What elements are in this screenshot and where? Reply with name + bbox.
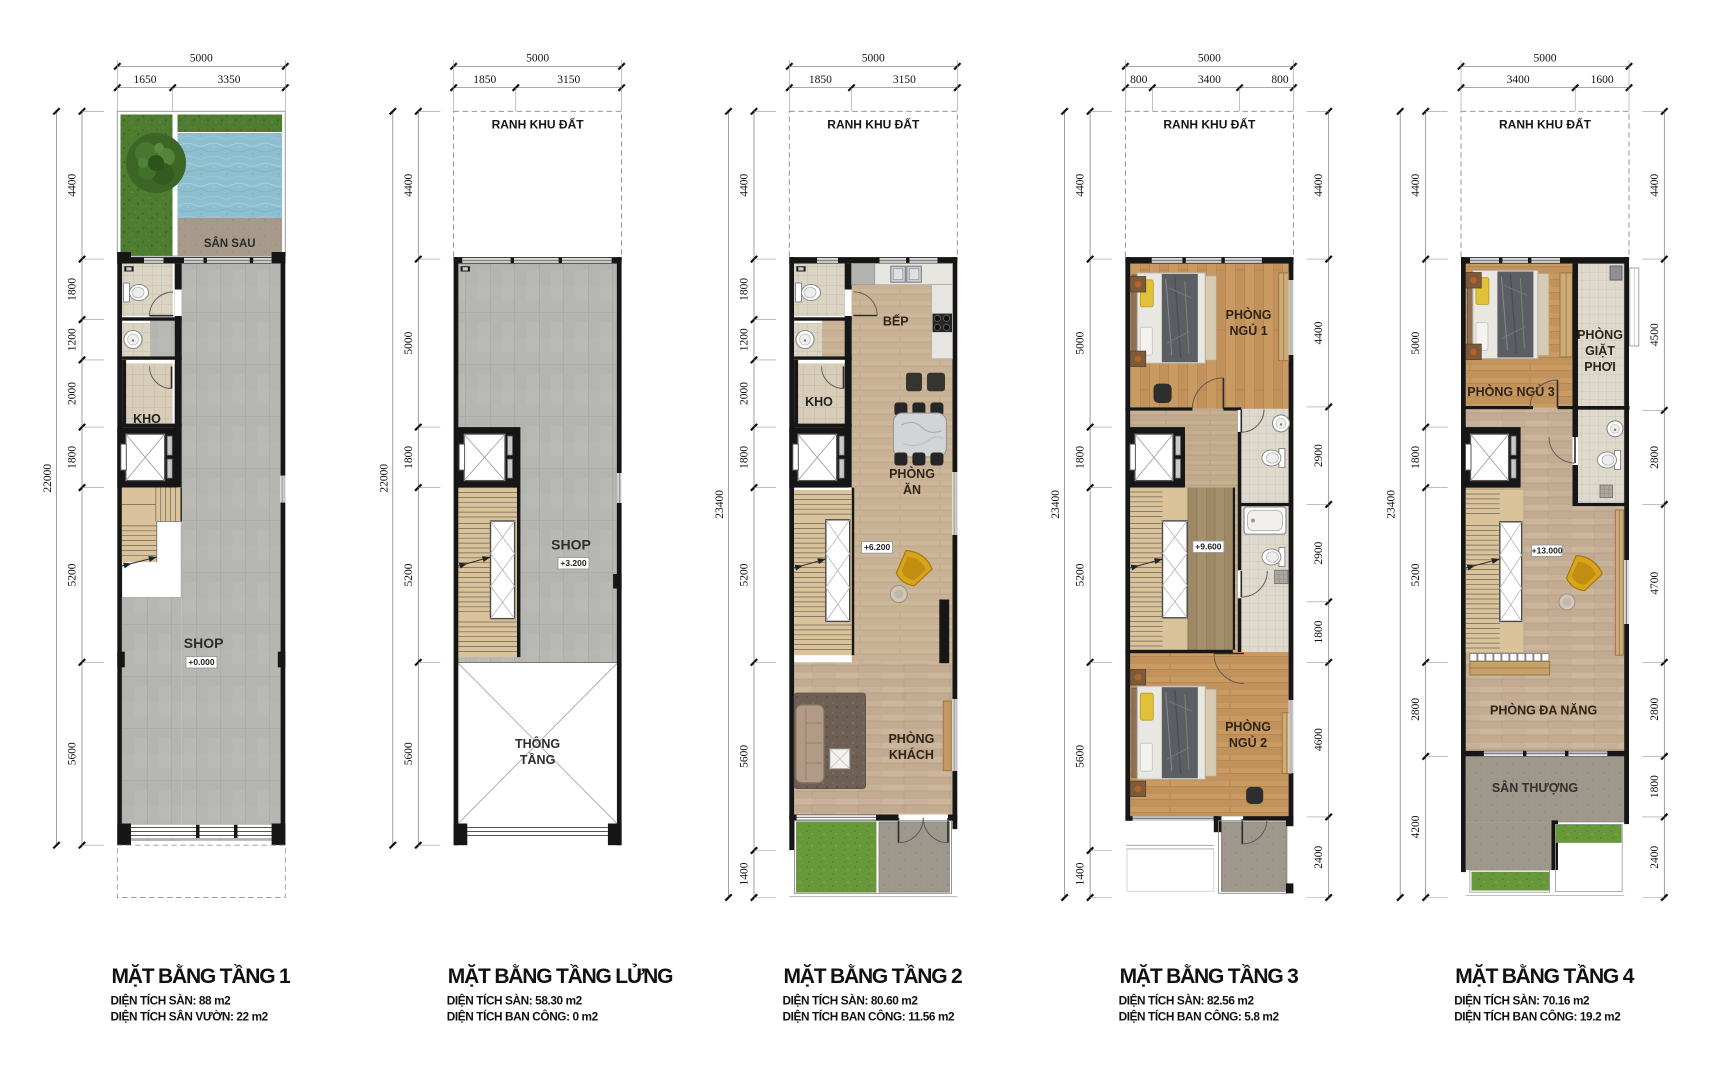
svg-text:RANH KHU ĐẤT: RANH KHU ĐẤT [1163, 117, 1256, 132]
svg-text:DIỆN TÍCH SÀN: 80.60 m2: DIỆN TÍCH SÀN: 80.60 m2 [783, 994, 919, 1008]
svg-text:5200: 5200 [403, 563, 415, 586]
svg-text:1650: 1650 [134, 74, 157, 86]
svg-text:SHOP: SHOP [184, 635, 224, 651]
svg-text:1200: 1200 [67, 328, 79, 351]
svg-text:5000: 5000 [1075, 331, 1087, 354]
svg-text:1800: 1800 [1649, 775, 1661, 798]
svg-text:MẶT BẰNG TẦNG 1: MẶT BẰNG TẦNG 1 [112, 964, 292, 988]
svg-text:3400: 3400 [1198, 74, 1221, 86]
svg-text:RANH KHU ĐẤT: RANH KHU ĐẤT [1499, 117, 1592, 132]
svg-text:DIỆN TÍCH BAN CÔNG: 19.2 m2: DIỆN TÍCH BAN CÔNG: 19.2 m2 [1454, 1010, 1621, 1024]
svg-text:+0.000: +0.000 [188, 657, 215, 667]
svg-text:SHOP: SHOP [551, 537, 591, 553]
svg-text:2000: 2000 [739, 382, 751, 405]
svg-text:1800: 1800 [67, 278, 79, 301]
svg-text:5600: 5600 [67, 742, 79, 765]
svg-text:22000: 22000 [378, 464, 390, 493]
svg-text:ĂN: ĂN [903, 482, 921, 497]
svg-text:MẶT BẰNG TẦNG 2: MẶT BẰNG TẦNG 2 [784, 964, 963, 988]
svg-text:1800: 1800 [1075, 446, 1087, 469]
svg-text:3150: 3150 [893, 74, 916, 86]
svg-text:800: 800 [1130, 74, 1148, 86]
svg-text:4200: 4200 [1410, 815, 1422, 838]
svg-text:2000: 2000 [67, 382, 79, 405]
svg-text:+13.000: +13.000 [1532, 546, 1563, 556]
svg-text:23400: 23400 [714, 490, 726, 519]
svg-text:THÔNG: THÔNG [515, 736, 560, 751]
svg-text:4400: 4400 [403, 173, 415, 196]
svg-text:3150: 3150 [557, 74, 580, 86]
svg-text:1850: 1850 [809, 74, 832, 86]
svg-text:5200: 5200 [67, 563, 79, 586]
svg-text:MẶT BẰNG TẦNG 3: MẶT BẰNG TẦNG 3 [1120, 964, 1299, 988]
svg-text:5000: 5000 [862, 53, 885, 65]
svg-text:3400: 3400 [1507, 74, 1530, 86]
svg-text:1400: 1400 [1075, 862, 1087, 885]
svg-text:5000: 5000 [526, 53, 549, 65]
svg-text:5000: 5000 [1198, 53, 1221, 65]
svg-text:4500: 4500 [1649, 323, 1661, 346]
svg-text:2800: 2800 [1649, 446, 1661, 469]
svg-text:1800: 1800 [67, 446, 79, 469]
svg-text:3350: 3350 [218, 74, 241, 86]
svg-text:RANH KHU ĐẤT: RANH KHU ĐẤT [827, 117, 920, 132]
svg-text:4400: 4400 [1075, 173, 1087, 196]
svg-text:PHÒNG: PHÒNG [888, 731, 934, 746]
svg-text:5600: 5600 [1075, 745, 1087, 768]
svg-text:5000: 5000 [1410, 331, 1422, 354]
svg-text:2800: 2800 [1410, 698, 1422, 721]
svg-text:23400: 23400 [1386, 490, 1398, 519]
svg-text:4400: 4400 [1410, 173, 1422, 196]
svg-text:2400: 2400 [1649, 845, 1661, 868]
svg-text:4400: 4400 [67, 173, 79, 196]
svg-text:4400: 4400 [1313, 321, 1325, 344]
svg-text:TẦNG: TẦNG [520, 752, 555, 767]
svg-text:1400: 1400 [739, 862, 751, 885]
svg-text:1600: 1600 [1591, 74, 1614, 86]
svg-text:5000: 5000 [1534, 53, 1557, 65]
svg-text:+9.600: +9.600 [1195, 542, 1222, 552]
svg-text:4400: 4400 [1649, 173, 1661, 196]
svg-text:23400: 23400 [1050, 490, 1062, 519]
svg-text:1200: 1200 [739, 328, 751, 351]
svg-text:DIỆN TÍCH BAN CÔNG: 11.56 m2: DIỆN TÍCH BAN CÔNG: 11.56 m2 [783, 1010, 956, 1024]
svg-text:DIỆN TÍCH SÂN VƯỜN: 22 m2: DIỆN TÍCH SÂN VƯỜN: 22 m2 [111, 1010, 269, 1024]
svg-text:5200: 5200 [1410, 563, 1422, 586]
svg-text:DIỆN TÍCH BAN CÔNG: 5.8 m2: DIỆN TÍCH BAN CÔNG: 5.8 m2 [1119, 1010, 1280, 1024]
svg-text:PHÒNG: PHÒNG [1577, 327, 1623, 342]
svg-text:SÂN THƯỢNG: SÂN THƯỢNG [1492, 780, 1578, 795]
svg-text:DIỆN TÍCH SÀN: 88 m2: DIỆN TÍCH SÀN: 88 m2 [111, 994, 232, 1008]
svg-text:4400: 4400 [739, 173, 751, 196]
svg-text:1850: 1850 [473, 74, 496, 86]
svg-text:NGỦ 1: NGỦ 1 [1229, 323, 1267, 338]
svg-text:RANH KHU ĐẤT: RANH KHU ĐẤT [492, 117, 585, 132]
svg-text:+6.200: +6.200 [864, 542, 891, 552]
svg-text:5000: 5000 [190, 53, 213, 65]
svg-text:MẶT BẰNG TẦNG LỬNG: MẶT BẰNG TẦNG LỬNG [448, 964, 673, 988]
svg-text:BẾP: BẾP [883, 314, 909, 329]
svg-text:1800: 1800 [1410, 446, 1422, 469]
svg-text:PHÒNG: PHÒNG [1225, 719, 1271, 734]
svg-text:+3.200: +3.200 [560, 558, 587, 568]
svg-text:PHÒNG ĐA NĂNG: PHÒNG ĐA NĂNG [1490, 703, 1597, 718]
svg-text:22000: 22000 [42, 464, 54, 493]
svg-text:5600: 5600 [403, 742, 415, 765]
svg-text:MẶT BẰNG TẦNG 4: MẶT BẰNG TẦNG 4 [1455, 964, 1635, 988]
svg-text:4600: 4600 [1313, 728, 1325, 751]
svg-text:DIỆN TÍCH SÀN: 82.56 m2: DIỆN TÍCH SÀN: 82.56 m2 [1119, 994, 1255, 1008]
svg-text:SÂN SAU: SÂN SAU [204, 237, 256, 250]
svg-text:PHÒNG: PHÒNG [889, 466, 935, 481]
svg-text:GIẶT: GIẶT [1585, 343, 1615, 358]
svg-text:PHÒNG NGỦ 3: PHÒNG NGỦ 3 [1467, 384, 1555, 399]
svg-text:5200: 5200 [739, 563, 751, 586]
svg-text:1800: 1800 [739, 446, 751, 469]
svg-text:DIỆN TÍCH BAN CÔNG: 0 m2: DIỆN TÍCH BAN CÔNG: 0 m2 [447, 1010, 599, 1024]
svg-text:2400: 2400 [1313, 845, 1325, 868]
svg-text:800: 800 [1271, 74, 1289, 86]
svg-text:4400: 4400 [1313, 173, 1325, 196]
svg-text:DIỆN TÍCH SÀN: 70.16 m2: DIỆN TÍCH SÀN: 70.16 m2 [1454, 994, 1590, 1008]
svg-text:2800: 2800 [1649, 698, 1661, 721]
svg-text:1800: 1800 [739, 278, 751, 301]
svg-text:KHO: KHO [805, 395, 833, 409]
svg-text:5200: 5200 [1075, 563, 1087, 586]
svg-text:5600: 5600 [739, 745, 751, 768]
svg-text:1800: 1800 [403, 446, 415, 469]
svg-text:4700: 4700 [1649, 572, 1661, 595]
svg-text:5000: 5000 [403, 331, 415, 354]
svg-text:DIỆN TÍCH SÀN: 58.30 m2: DIỆN TÍCH SÀN: 58.30 m2 [447, 994, 583, 1008]
svg-text:PHÒNG: PHÒNG [1226, 307, 1272, 322]
svg-text:1800: 1800 [1313, 620, 1325, 643]
svg-text:2900: 2900 [1313, 444, 1325, 467]
svg-text:2900: 2900 [1313, 541, 1325, 564]
svg-text:PHƠI: PHƠI [1584, 360, 1616, 374]
svg-text:KHÁCH: KHÁCH [889, 747, 934, 762]
svg-text:NGỦ 2: NGỦ 2 [1229, 735, 1267, 750]
